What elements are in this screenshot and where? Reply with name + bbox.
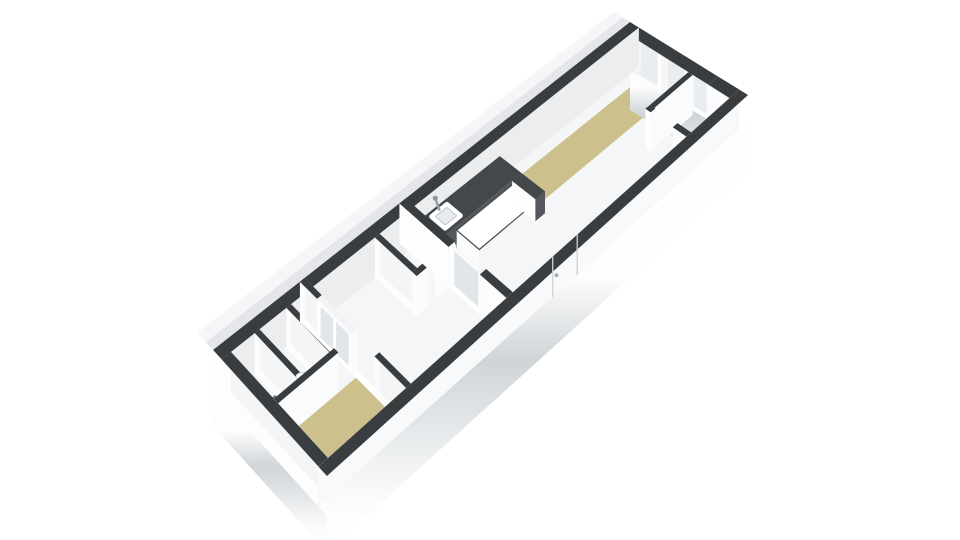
wall-endroom-a-face-sw	[645, 109, 650, 153]
floorplan-canvas	[0, 0, 960, 540]
kitchen-faucet-head	[433, 196, 438, 201]
floorplan-3d-view	[0, 0, 960, 540]
wall-endroom-a-face-se	[651, 108, 656, 152]
window-mullion-2-face-sw	[658, 51, 661, 93]
wall-wc2-b-face-sw	[412, 272, 416, 316]
se-door-handle	[555, 273, 559, 277]
tip-window-frame-face-se	[352, 330, 357, 374]
door-post-1-face-sw	[450, 246, 453, 288]
